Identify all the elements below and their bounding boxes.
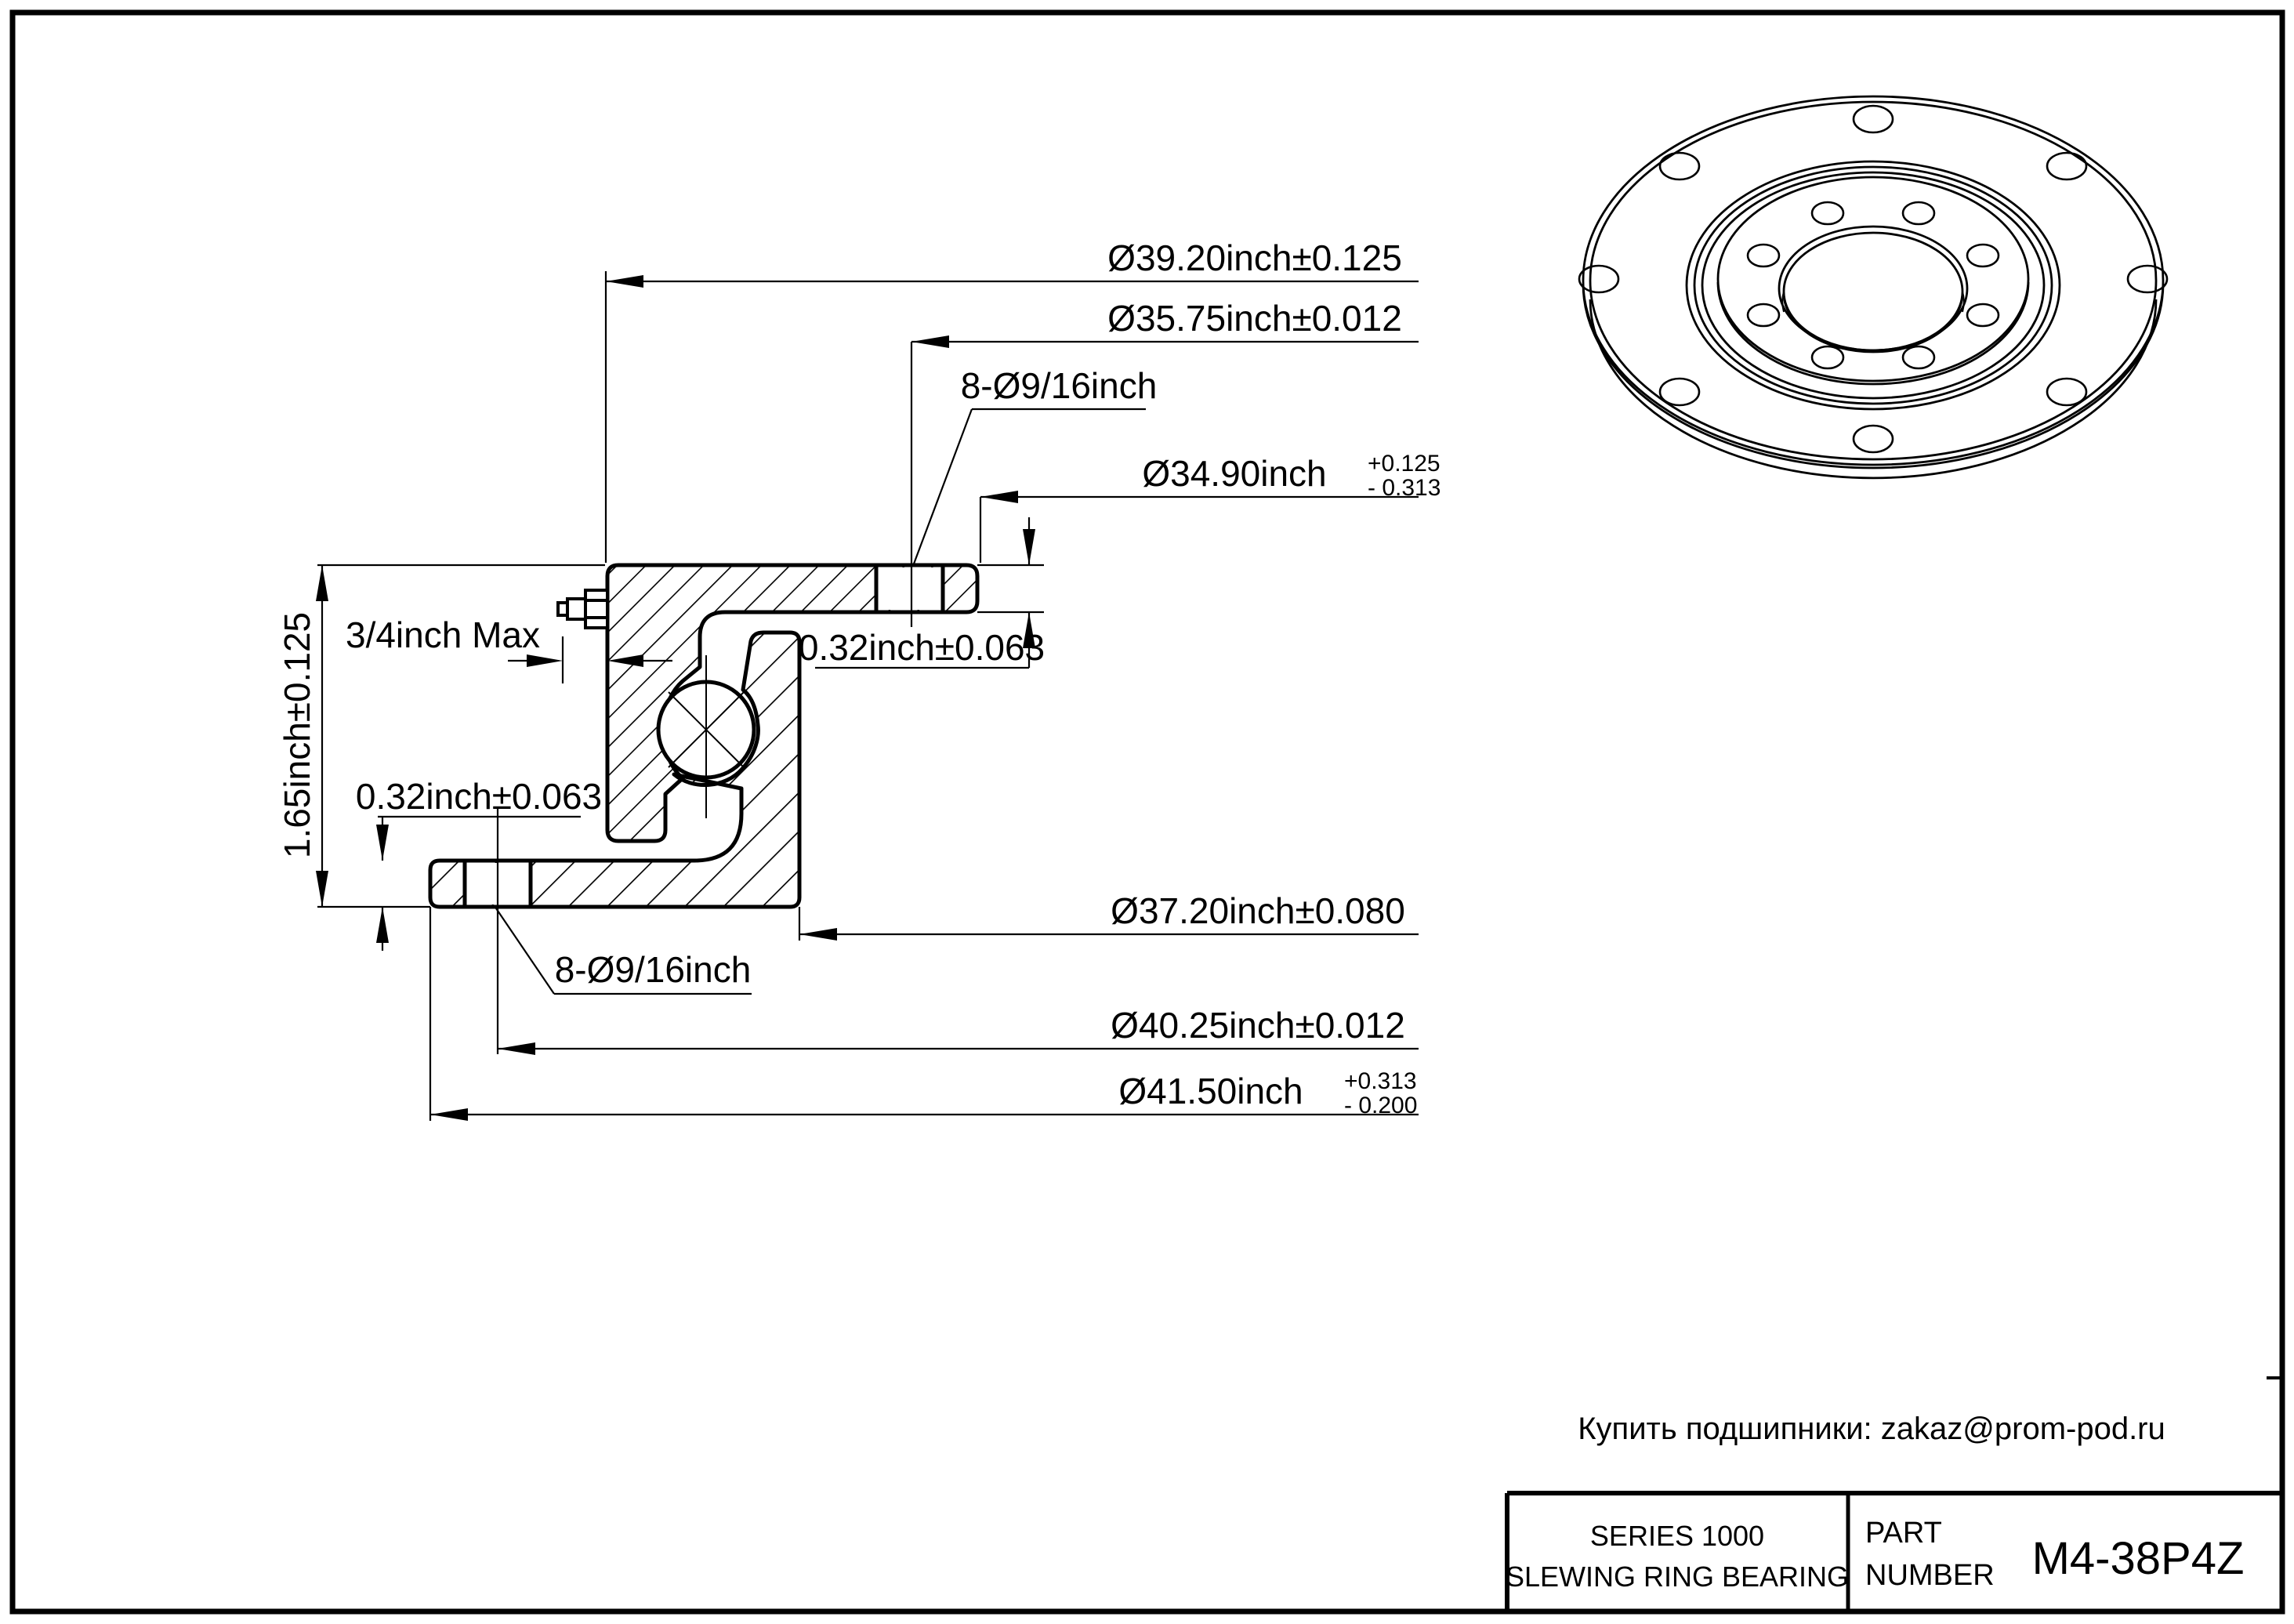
dim-flange-thickness-left: 0.32inch±0.063: [356, 776, 602, 817]
isometric-view: [1579, 96, 2167, 478]
dim-od-3720: Ø37.20inch±0.080: [1111, 890, 1405, 931]
dim-bc-3575: Ø35.75inch±0.012: [1107, 298, 1402, 339]
engineering-drawing: Ø39.20inch±0.125 Ø35.75inch±0.012 8-Ø9/1…: [0, 0, 2294, 1624]
dim-od-4150-minus: - 0.200: [1344, 1093, 1417, 1118]
dim-od-4150-plus: +0.313: [1344, 1068, 1417, 1094]
part-number: M4-38P4Z: [2032, 1533, 2245, 1584]
dim-id-3490: Ø34.90inch: [1142, 453, 1326, 494]
title-block: SERIES 1000 SLEWING RING BEARING PART NU…: [1506, 1493, 2282, 1611]
dim-bolt-top: 8-Ø9/16inch: [961, 365, 1158, 406]
dim-flange-thickness-right: 0.32inch±0.063: [799, 627, 1045, 668]
dim-id-3490-minus: - 0.313: [1368, 475, 1441, 501]
part-label-line2: NUMBER: [1865, 1559, 1995, 1592]
dim-grease-max: 3/4inch Max: [346, 614, 540, 655]
dim-height-165: 1.65inch±0.125: [277, 612, 317, 858]
dim-bolt-bottom: 8-Ø9/16inch: [555, 949, 752, 990]
grease-fitting: [558, 590, 607, 628]
dim-bc-4025: Ø40.25inch±0.012: [1111, 1005, 1405, 1046]
title-series: SERIES 1000: [1590, 1520, 1764, 1552]
dim-od-4150: Ø41.50inch: [1118, 1071, 1303, 1111]
footer-contact: Купить подшипники: zakaz@prom-pod.ru: [1578, 1412, 2165, 1446]
title-product: SLEWING RING BEARING: [1506, 1561, 1849, 1593]
part-label-line1: PART: [1865, 1517, 1942, 1550]
dimension-graphics: [317, 271, 1419, 1121]
drawing-sheet: Ø39.20inch±0.125 Ø35.75inch±0.012 8-Ø9/1…: [0, 0, 2294, 1624]
dim-od-3920: Ø39.20inch±0.125: [1107, 237, 1402, 278]
dim-id-3490-plus: +0.125: [1368, 451, 1441, 477]
dimension-texts: Ø39.20inch±0.125 Ø35.75inch±0.012 8-Ø9/1…: [277, 237, 1441, 1118]
